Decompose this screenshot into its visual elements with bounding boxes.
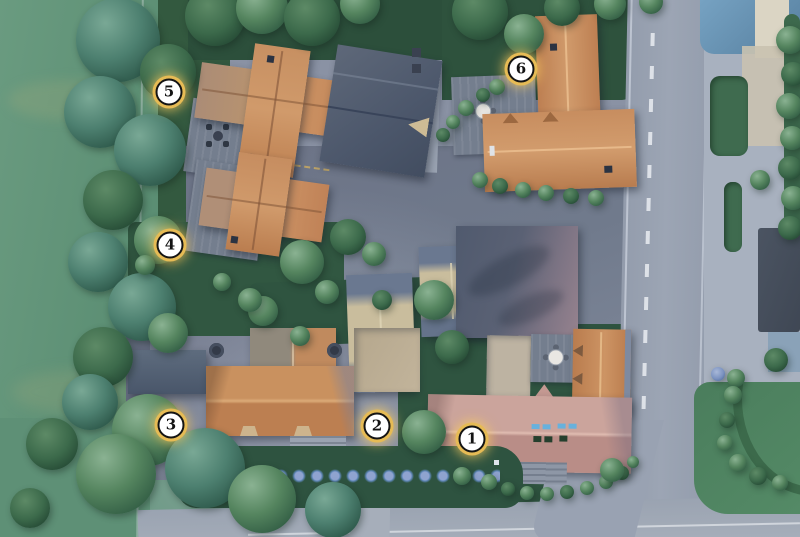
plot3-west-wing-roof[interactable] — [128, 350, 206, 394]
plot4-building[interactable] — [196, 148, 332, 262]
site-plan-aerial-view: 1 2 3 4 5 6 — [0, 0, 800, 537]
chimney-round — [209, 343, 224, 358]
plot-3-marker[interactable]: 3 — [158, 412, 185, 439]
plot-4-marker[interactable]: 4 — [157, 232, 184, 259]
barn-gray-roof[interactable] — [319, 44, 442, 177]
neighbor-roof-pale-blue — [768, 332, 800, 372]
plot1-rear-court — [486, 335, 531, 400]
lavender-border — [200, 468, 500, 484]
chimney — [267, 55, 275, 63]
plot3-main-roof[interactable] — [206, 366, 354, 436]
corner-post — [202, 460, 207, 465]
skylight-blue — [532, 424, 540, 429]
skylight-dark — [559, 435, 567, 441]
plot-4-number: 4 — [165, 238, 175, 253]
plot-1-number: 1 — [467, 432, 477, 447]
plot-5-marker[interactable]: 5 — [156, 79, 183, 106]
skylight-dark — [533, 436, 541, 442]
plot2-side-court — [354, 328, 420, 392]
chimney-round — [327, 343, 342, 358]
skylight-blue — [543, 424, 551, 429]
chimney — [230, 236, 238, 244]
plot-6-marker[interactable]: 6 — [508, 56, 535, 83]
plot-6-number: 6 — [516, 62, 526, 77]
outdoor-seat-cube — [412, 48, 421, 57]
skylight-blue — [558, 423, 566, 428]
plot6-building[interactable] — [449, 13, 637, 195]
plot-3-number: 3 — [166, 418, 176, 433]
beige-path-northeast — [742, 46, 790, 146]
southeast-green-corner — [694, 382, 800, 514]
chimney — [604, 166, 612, 173]
front-garden-island — [178, 446, 523, 508]
corner-post — [494, 460, 499, 465]
sidewalk-hedge-planter — [724, 182, 742, 252]
neighbor-roof-dark-gray — [758, 228, 800, 332]
chimney — [550, 43, 557, 50]
skylight-dark — [544, 436, 552, 442]
plot-2-number: 2 — [372, 419, 382, 434]
hedge-arc — [733, 382, 800, 496]
dormer — [573, 345, 583, 357]
plot-5-number: 5 — [164, 85, 174, 100]
field-mowing-streak — [8, 80, 128, 120]
plot-1-marker[interactable]: 1 — [459, 426, 486, 453]
rooflight — [489, 146, 494, 156]
plot-2-marker[interactable]: 2 — [364, 413, 391, 440]
dormer — [572, 373, 582, 385]
sidewalk-hedge-planter — [710, 76, 748, 156]
outdoor-seat-cube — [412, 64, 421, 73]
skylight-blue — [569, 424, 577, 429]
